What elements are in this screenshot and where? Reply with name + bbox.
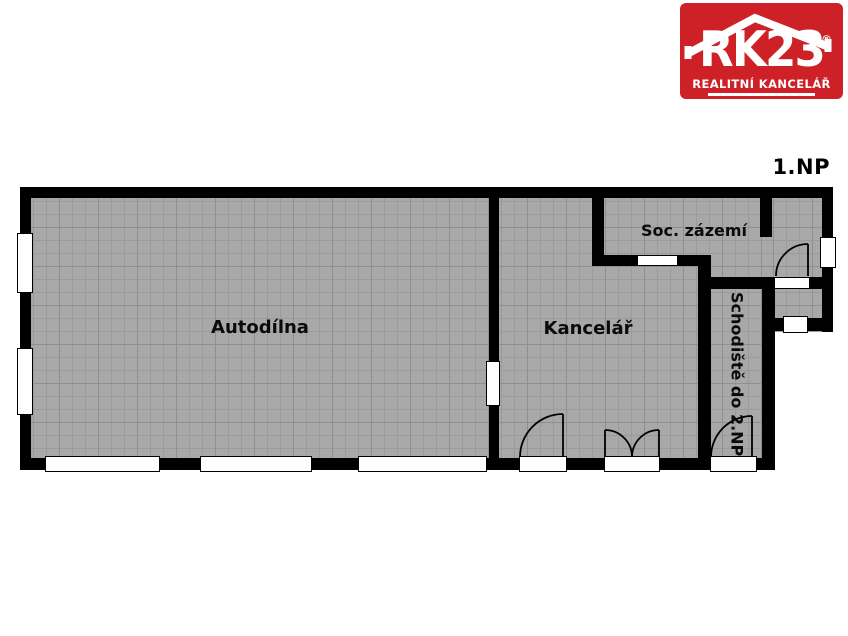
door-arc-office-double xyxy=(605,430,659,457)
logo-tagline: REALITNÍ KANCELÁŘ xyxy=(680,77,843,91)
floorplan-canvas: Autodílna Kancelář Soc. zázemí Schodiště… xyxy=(0,0,848,636)
room-label-autodilna: Autodílna xyxy=(60,317,460,338)
room-label-kancelar: Kancelář xyxy=(488,318,688,339)
rk23-logo: RK23 ® REALITNÍ KANCELÁŘ xyxy=(680,3,843,99)
room-label-schodiste: Schodiště do 2.NP xyxy=(711,289,763,459)
logo-underline xyxy=(708,93,815,97)
logo-brand-text: RK23 xyxy=(687,25,837,74)
registered-trademark-icon: ® xyxy=(821,33,832,46)
room-label-soc-zazemi: Soc. zázemí xyxy=(594,221,794,240)
floor-number-label: 1.NP xyxy=(730,155,830,179)
door-arc-vestibule xyxy=(776,244,808,276)
door-arc-office-1 xyxy=(520,414,563,457)
